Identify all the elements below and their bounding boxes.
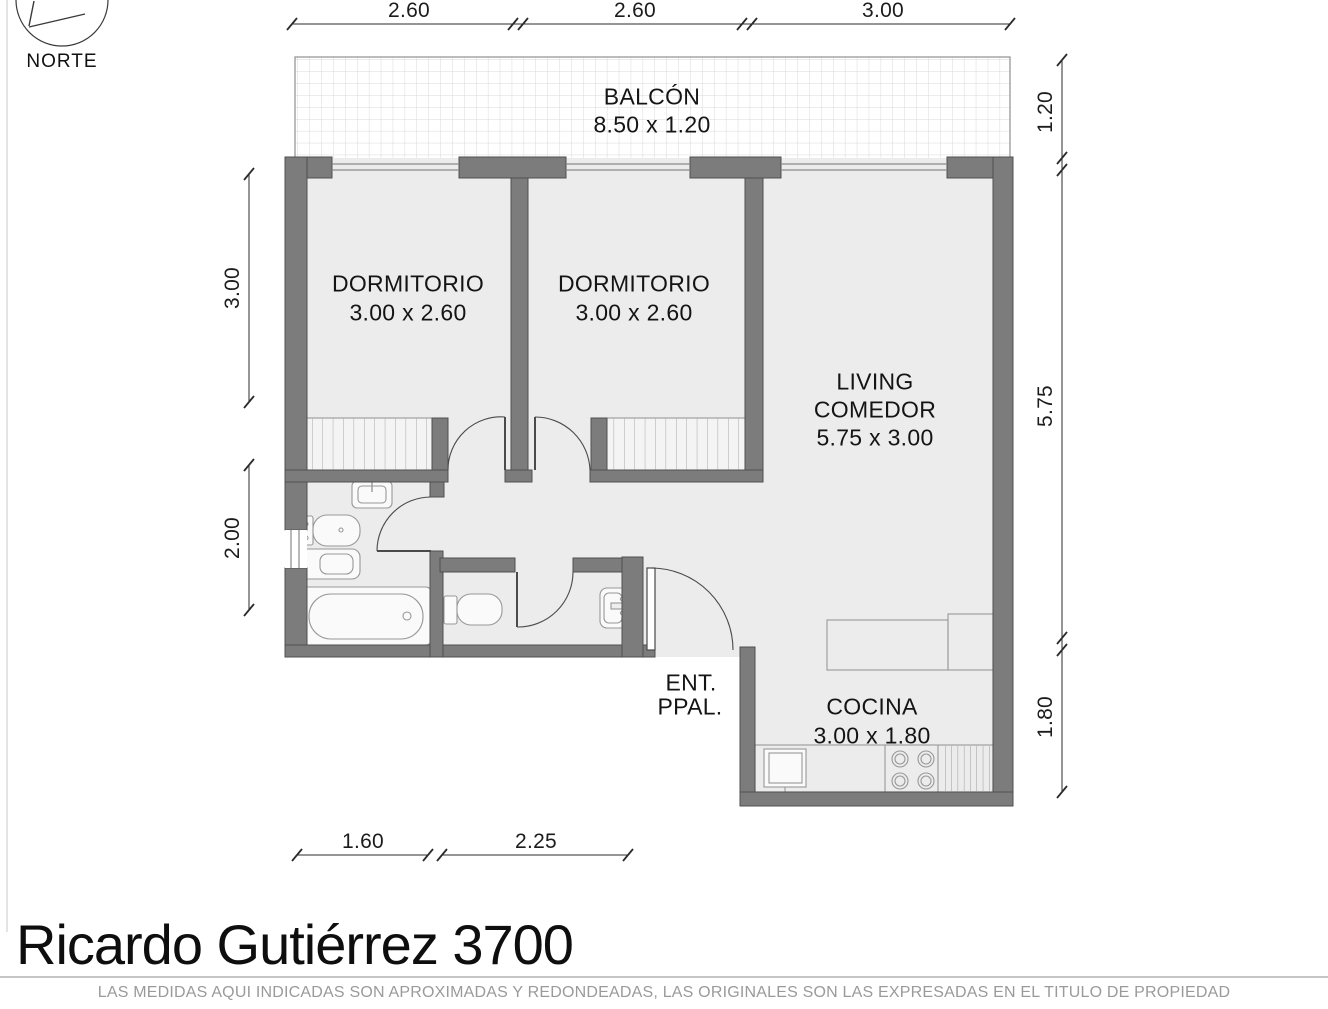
bedroom2-label: DORMITORIO bbox=[558, 271, 710, 298]
kitchen-size: 3.00 x 1.80 bbox=[813, 723, 930, 750]
compass-label: NORTE bbox=[26, 51, 97, 73]
closet-bedroom1 bbox=[307, 418, 432, 470]
dim-left-2: 2.00 bbox=[221, 517, 245, 559]
entry-label-line2: PPAL. bbox=[658, 694, 723, 721]
dim-left-1: 3.00 bbox=[221, 267, 245, 309]
bathroom-window bbox=[285, 530, 307, 568]
bathtub bbox=[301, 587, 431, 645]
north-compass-icon bbox=[16, 0, 108, 46]
bidet bbox=[300, 549, 360, 579]
dish-drainer bbox=[940, 746, 992, 791]
living-size: 5.75 x 3.00 bbox=[816, 425, 933, 452]
floor-plan-drawing bbox=[0, 0, 1328, 1009]
dim-right-2: 5.75 bbox=[1034, 385, 1058, 427]
dim-bottom-2: 2.25 bbox=[515, 830, 557, 854]
balcony-size: 8.50 x 1.20 bbox=[593, 112, 710, 139]
disclaimer-text: LAS MEDIDAS AQUI INDICADAS SON APROXIMAD… bbox=[0, 984, 1328, 1002]
dim-top-1: 2.60 bbox=[388, 0, 430, 23]
balcony-label: BALCÓN bbox=[604, 84, 700, 111]
bedroom2-size: 3.00 x 2.60 bbox=[575, 300, 692, 327]
entry-label-line1: ENT. bbox=[665, 670, 716, 697]
kitchen-label: COCINA bbox=[826, 694, 917, 721]
closet-bedroom2 bbox=[607, 418, 745, 470]
living-label-line2: COMEDOR bbox=[814, 397, 936, 424]
page-title: Ricardo Gutiérrez 3700 bbox=[16, 912, 573, 977]
bedroom1-label: DORMITORIO bbox=[332, 271, 484, 298]
bedroom1-size: 3.00 x 2.60 bbox=[349, 300, 466, 327]
dim-right-3: 1.80 bbox=[1034, 696, 1058, 738]
dim-top-2: 2.60 bbox=[614, 0, 656, 23]
dim-right-1: 1.20 bbox=[1034, 91, 1058, 133]
living-label-line1: LIVING bbox=[836, 369, 913, 396]
toilet bbox=[300, 515, 360, 546]
toilette-toilet bbox=[444, 594, 502, 625]
dim-top-3: 3.00 bbox=[862, 0, 904, 23]
floor-plan-page: NORTE 2.60 2.60 3.00 3.00 2.00 1.20 5.75… bbox=[0, 0, 1328, 1009]
dim-bottom-1: 1.60 bbox=[342, 830, 384, 854]
